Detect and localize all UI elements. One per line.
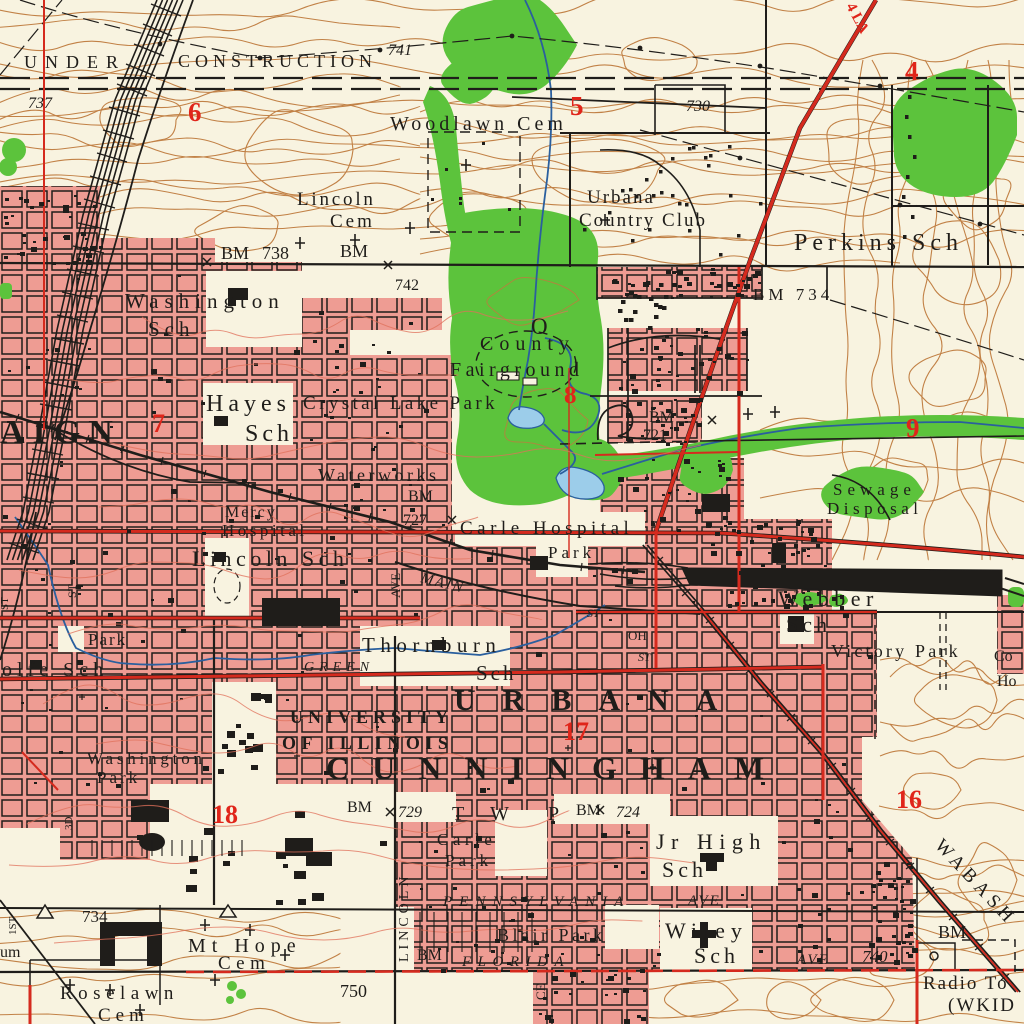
svg-text:CUNNINGHAM: CUNNINGHAM [326, 750, 787, 786]
svg-text:Park: Park [88, 630, 127, 649]
svg-text:um: um [0, 944, 21, 961]
svg-text:Wiley: Wiley [665, 918, 748, 943]
svg-text:County: County [480, 333, 575, 355]
svg-text:AVE: AVE [388, 573, 403, 598]
svg-text:740: 740 [862, 947, 888, 966]
svg-text:18: 18 [212, 800, 238, 829]
svg-text:Park: Park [548, 543, 595, 562]
svg-text:Radio To: Radio To [923, 973, 1009, 994]
svg-text:BM: BM [408, 488, 433, 505]
svg-text:7: 7 [152, 409, 165, 438]
svg-text:Waterworks: Waterworks [318, 465, 440, 485]
svg-text:Lincoln: Lincoln [297, 189, 376, 210]
svg-text:Hospital: Hospital [222, 521, 308, 540]
svg-text:727: 727 [403, 512, 427, 529]
svg-text:ST: ST [587, 606, 601, 620]
svg-text:BM: BM [221, 243, 249, 263]
svg-text:738: 738 [262, 243, 289, 263]
svg-text:Ho: Ho [997, 673, 1017, 690]
svg-text:Jr High: Jr High [656, 829, 767, 854]
svg-text:LINCOLN: LINCOLN [397, 873, 412, 962]
svg-text:ST: ST [65, 583, 79, 598]
svg-text:Cem: Cem [218, 953, 270, 974]
svg-text:Crystal Lake Park: Crystal Lake Park [303, 393, 498, 414]
svg-text:750: 750 [340, 981, 367, 1001]
svg-text:730: 730 [686, 98, 710, 115]
svg-text:1ST: 1ST [7, 916, 19, 935]
svg-text:Sch: Sch [662, 857, 707, 882]
svg-text:ST: ST [638, 650, 652, 664]
svg-text:Woodlawn Cem: Woodlawn Cem [390, 113, 567, 135]
svg-text:FLORIDA: FLORIDA [461, 954, 570, 970]
svg-text:Cem: Cem [98, 1005, 149, 1024]
svg-text:BM: BM [938, 922, 966, 942]
svg-text:BM: BM [649, 409, 674, 426]
svg-text:Roselawn: Roselawn [60, 983, 179, 1004]
svg-text:AIGN: AIGN [0, 414, 121, 451]
svg-text:737: 737 [28, 95, 53, 112]
svg-text:Hayes: Hayes [206, 391, 291, 417]
svg-text:ST: ST [0, 597, 11, 610]
svg-text:Washington: Washington [87, 749, 206, 768]
svg-text:T: T [452, 803, 464, 825]
svg-text:Sch: Sch [245, 421, 293, 447]
svg-text:Cem: Cem [330, 211, 375, 232]
svg-text:BM: BM [576, 802, 601, 819]
svg-text:724: 724 [616, 804, 640, 821]
svg-text:3D: 3D [63, 817, 75, 831]
svg-text:Sch: Sch [694, 943, 739, 968]
svg-text:734: 734 [82, 907, 108, 926]
svg-text:Victory Park: Victory Park [831, 641, 961, 661]
svg-text:Washington: Washington [125, 289, 285, 313]
svg-text:Urbana: Urbana [587, 187, 655, 208]
svg-text:16: 16 [896, 785, 922, 814]
svg-text:742: 742 [395, 277, 419, 294]
svg-text:6: 6 [188, 97, 202, 127]
svg-text:Co: Co [994, 648, 1013, 665]
svg-text:729: 729 [398, 804, 422, 821]
svg-text:721: 721 [643, 427, 667, 444]
svg-text:CE: CE [533, 983, 548, 1000]
svg-text:741: 741 [388, 42, 412, 59]
svg-text:AVE: AVE [796, 952, 830, 968]
svg-text:BM: BM [347, 799, 372, 816]
svg-text:AVE: AVE [687, 893, 721, 909]
svg-text:Mercy: Mercy [225, 504, 277, 521]
svg-text:8: 8 [564, 382, 577, 409]
svg-text:Sch: Sch [786, 612, 831, 637]
svg-text:OH: OH [628, 628, 647, 643]
svg-text:Sch: Sch [148, 317, 195, 341]
svg-text:CONSTRUCTION: CONSTRUCTION [178, 51, 377, 71]
svg-text:Disposal: Disposal [827, 499, 923, 518]
svg-text:Carle Hospital: Carle Hospital [460, 518, 633, 539]
svg-text:BM: BM [340, 241, 368, 261]
svg-text:olfe Sch: olfe Sch [2, 659, 108, 681]
svg-text:UNDER: UNDER [24, 52, 126, 72]
svg-text:Park: Park [97, 768, 140, 787]
svg-text:BM 734: BM 734 [753, 285, 833, 304]
svg-text:4: 4 [905, 56, 919, 86]
svg-text:Webber: Webber [778, 586, 879, 611]
svg-text:Blair Park: Blair Park [497, 925, 606, 945]
svg-text:5: 5 [570, 91, 584, 121]
svg-text:PENNSYLVANIA: PENNSYLVANIA [442, 894, 630, 910]
svg-text:GREEN: GREEN [304, 660, 374, 675]
svg-text:Perkins Sch: Perkins Sch [794, 230, 963, 256]
svg-text:Thornburn: Thornburn [362, 633, 501, 657]
svg-text:P: P [548, 803, 559, 825]
svg-text:Fairground: Fairground [450, 359, 584, 381]
svg-text:W: W [490, 803, 509, 825]
svg-text:9: 9 [906, 413, 920, 443]
svg-text:Lincoln Sch: Lincoln Sch [192, 546, 348, 571]
svg-text:Park: Park [445, 851, 492, 870]
svg-text:UNIVERSITY: UNIVERSITY [290, 707, 453, 727]
svg-text:Sch: Sch [476, 661, 517, 685]
svg-text:URBANA: URBANA [454, 684, 744, 717]
svg-text:(WKID: (WKID [948, 995, 1016, 1016]
svg-text:Carle: Carle [437, 830, 496, 849]
svg-text:17: 17 [563, 717, 589, 746]
svg-text:Sewage: Sewage [833, 480, 916, 499]
svg-text:Country Club: Country Club [579, 210, 707, 231]
svg-text:BM: BM [417, 947, 442, 964]
